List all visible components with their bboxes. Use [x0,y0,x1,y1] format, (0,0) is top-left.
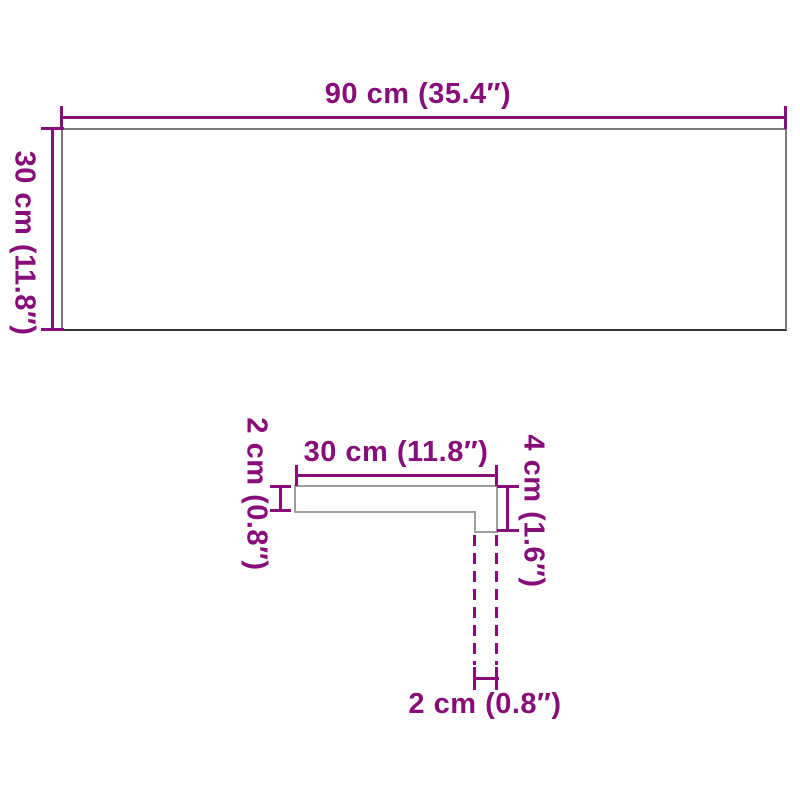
extension-dashed-line [473,535,476,665]
dimension-tick [495,465,498,486]
profile-thickness-dimension-label: 2 cm (0.8″) [242,417,271,570]
profile-height-dimension-label: 4 cm (1.6″) [519,434,548,587]
dimension-tick [473,667,476,690]
profile-cross-section [0,0,800,800]
profile-width-dimension-line [296,474,498,477]
dimension-tick [497,529,519,532]
dimension-tick [270,509,291,512]
extension-dashed-line [495,535,498,665]
profile-height-dimension-line [506,486,509,532]
dimension-tick [270,485,291,488]
profile-lip-dimension-label: 2 cm (0.8″) [408,690,561,719]
dimension-tick [497,485,519,488]
dimension-tick [295,465,298,486]
profile-width-dimension-label: 30 cm (11.8″) [304,438,489,467]
dimension-tick [495,667,498,690]
dimension-diagram: 90 cm (35.4″) 30 cm (11.8″) 30 cm (11.8″… [0,0,800,800]
stair-nosing-profile-shape [295,486,497,532]
